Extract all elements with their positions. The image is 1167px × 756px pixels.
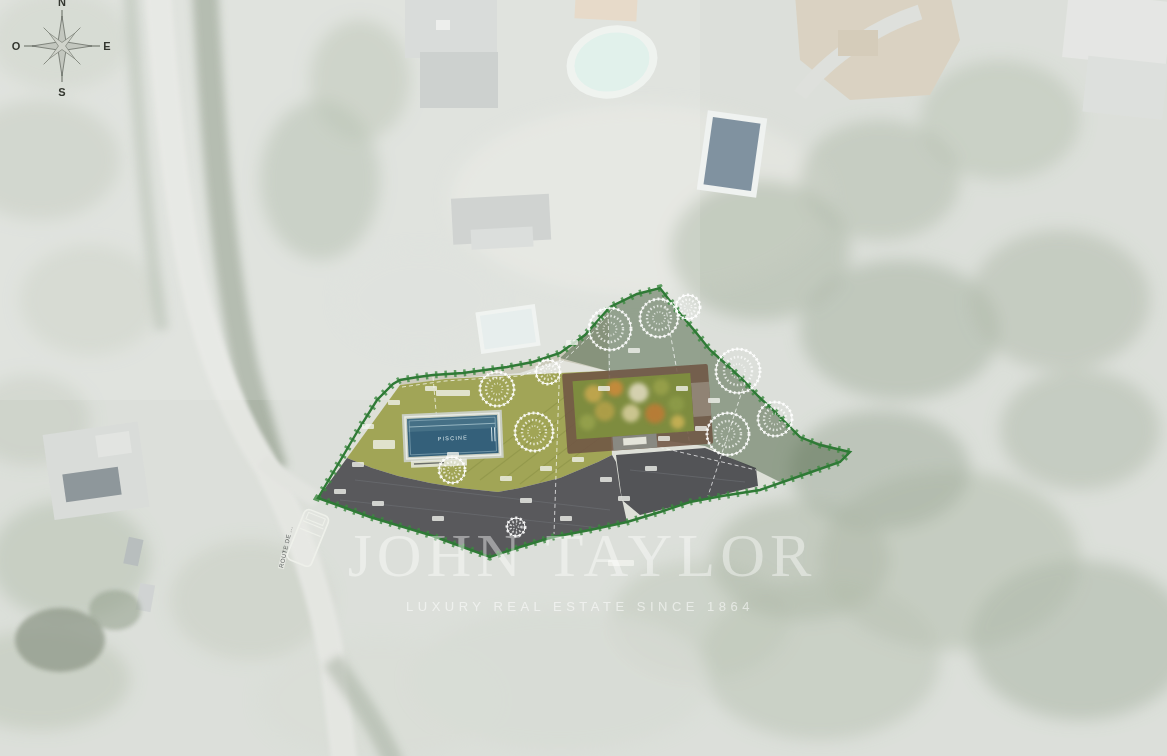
compass-east-label: E <box>103 40 110 52</box>
aerial-site-plan-image: PISCINE <box>0 0 1167 756</box>
building-green-roof <box>562 364 713 454</box>
compass-south-label: S <box>58 86 65 98</box>
watermark-tagline: LUXURY REAL ESTATE SINCE 1864 <box>406 599 754 614</box>
compass-north-label: N <box>58 0 66 8</box>
site-plan-svg: PISCINE <box>0 0 1167 756</box>
watermark-brand: JOHN TAYLOR <box>348 524 817 586</box>
compass-west-label: O <box>12 40 21 52</box>
